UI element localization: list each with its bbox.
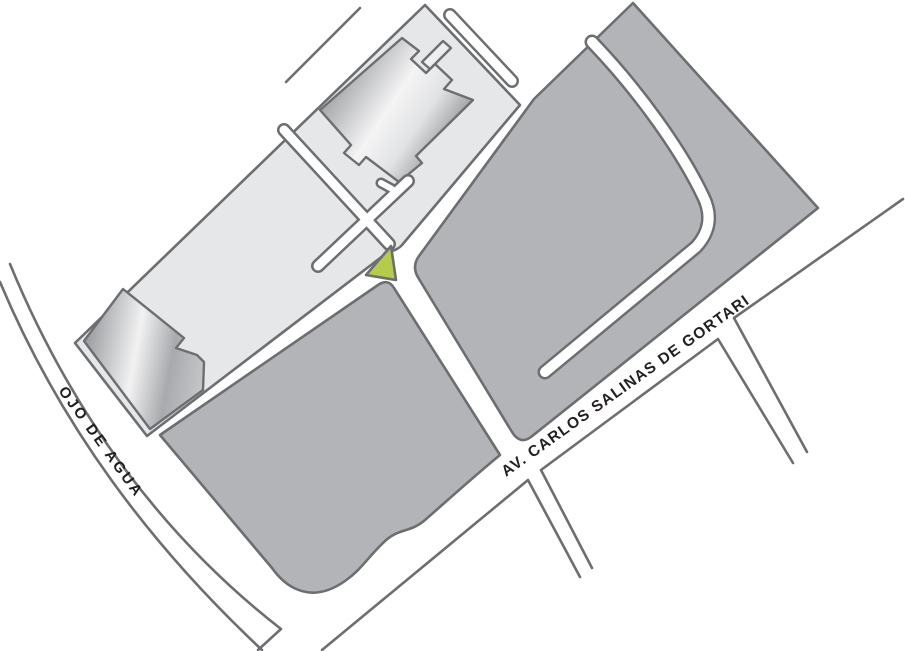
street-map-svg: OJO DE AGUA AV. CARLOS SALINAS DE GORTAR… (0, 0, 905, 651)
map-canvas: OJO DE AGUA AV. CARLOS SALINAS DE GORTAR… (0, 0, 905, 651)
